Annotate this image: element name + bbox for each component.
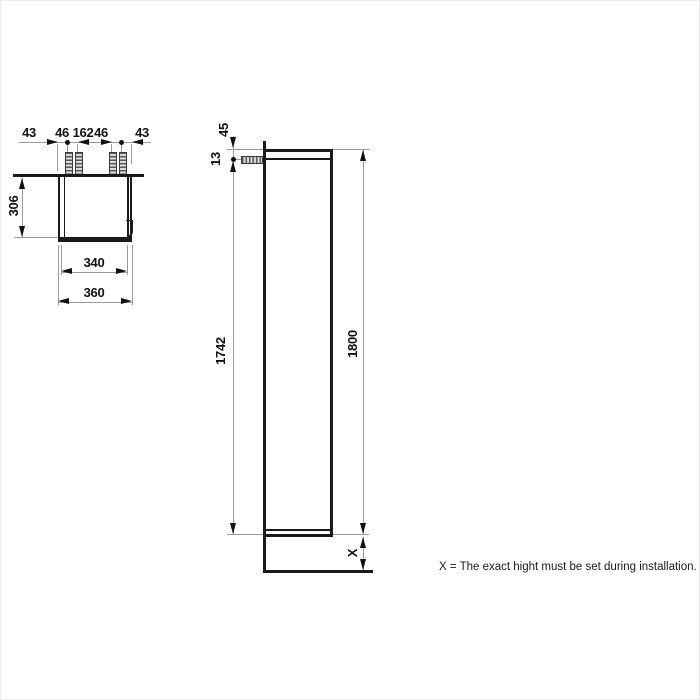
cabinet-plan-inner-left (64, 177, 66, 237)
dim-label-340: 340 (79, 256, 109, 270)
dim-label-306: 306 (7, 186, 21, 226)
arrowhead-down (360, 559, 366, 570)
door-hinge-tick (126, 220, 133, 222)
mounting-screw-icon (109, 152, 117, 176)
cabinet-elevation-outline (263, 149, 333, 537)
witness-line (58, 245, 59, 305)
dim-label-43-right: 43 (127, 126, 157, 140)
arrowhead-down (360, 523, 366, 534)
witness-line (57, 144, 58, 171)
door-corner-detail (121, 220, 133, 239)
mounting-screw-icon (241, 156, 263, 164)
dim-label-43-left: 43 (14, 126, 44, 140)
arrowhead-down (230, 137, 236, 148)
cabinet-plan-inner-bottom (60, 237, 131, 239)
dim-dot (119, 140, 124, 145)
arrowhead-up (230, 161, 236, 172)
witness-line (67, 144, 68, 152)
extension-line (14, 237, 57, 238)
installation-note: X = The exact hight must be set during i… (439, 561, 697, 573)
dim-label-x: X (346, 533, 360, 573)
arrowhead-left (61, 268, 72, 274)
witness-line (111, 144, 112, 152)
witness-line (77, 144, 78, 152)
technical-drawing-canvas: 43 46 162 46 43 306 340 360 (0, 0, 700, 700)
mounting-screw-icon (65, 152, 73, 176)
cabinet-bottom-panel-line (266, 529, 330, 531)
dim-label-46-right: 46 (86, 126, 116, 140)
arrowhead-up (360, 150, 366, 161)
arrowhead-right (121, 298, 132, 304)
witness-line (131, 144, 132, 164)
dim-dot (65, 140, 70, 145)
arrowhead-right (116, 268, 127, 274)
dim-label-1742: 1742 (214, 331, 228, 371)
witness-line (132, 245, 133, 305)
witness-line (121, 144, 122, 152)
arrowhead-left (58, 298, 69, 304)
arrowhead-up (360, 537, 366, 548)
arrowhead-left (132, 139, 143, 145)
arrowhead-left (78, 139, 89, 145)
arrowhead-down (230, 523, 236, 534)
arrowhead-right (47, 139, 58, 145)
dim-label-360: 360 (79, 286, 109, 300)
arrowhead-up (19, 178, 25, 189)
dim-line-1742 (233, 136, 234, 534)
dim-line-1800 (363, 150, 364, 534)
dim-label-13: 13 (209, 139, 223, 179)
arrowhead-right (101, 139, 112, 145)
arrowhead-down (19, 226, 25, 237)
cabinet-top-panel-line (266, 158, 330, 160)
mounting-screw-icon (75, 152, 83, 176)
mounting-screw-icon (119, 152, 127, 176)
dim-label-1800: 1800 (346, 324, 360, 364)
